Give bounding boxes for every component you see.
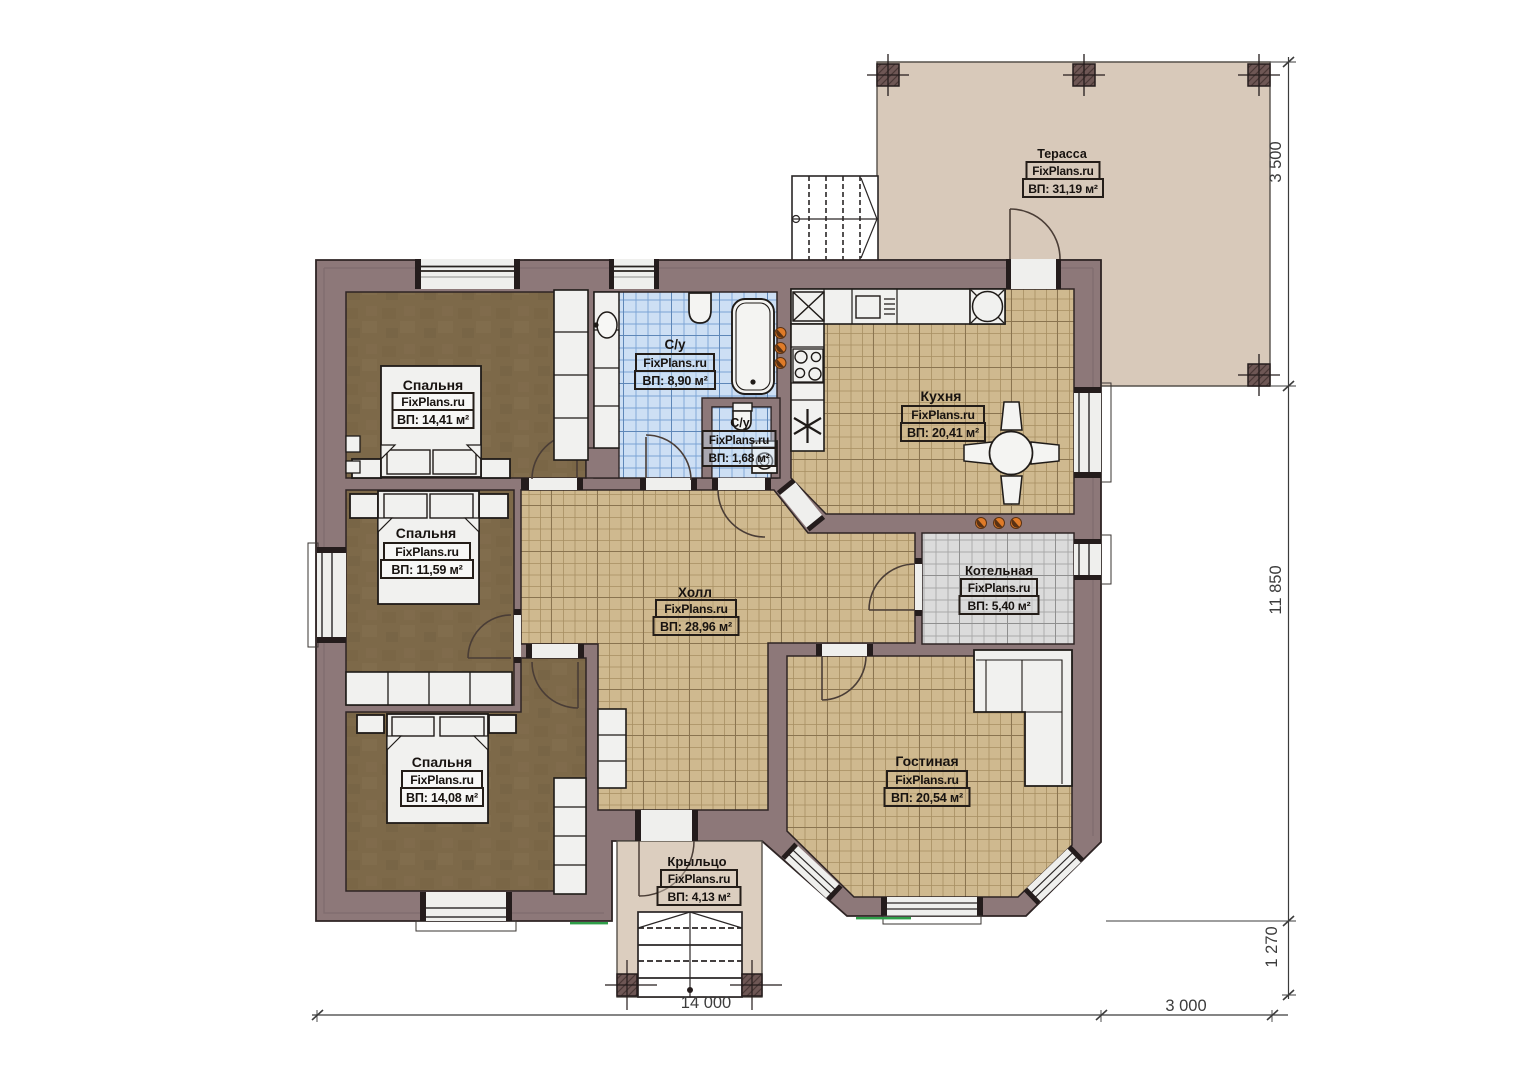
svg-text:ВП: 28,96 м²: ВП: 28,96 м² — [660, 620, 732, 634]
svg-text:ВП: 11,59 м²: ВП: 11,59 м² — [391, 563, 462, 577]
svg-text:Спальня: Спальня — [396, 525, 456, 541]
svg-text:ВП: 4,13 м²: ВП: 4,13 м² — [668, 890, 731, 904]
svg-text:FixPlans.ru: FixPlans.ru — [709, 434, 769, 447]
svg-text:Гостиная: Гостиная — [895, 753, 958, 769]
svg-text:11 850: 11 850 — [1267, 565, 1285, 614]
svg-text:ВП: 14,41 м²: ВП: 14,41 м² — [397, 413, 469, 427]
svg-text:ВП: 8,90 м²: ВП: 8,90 м² — [642, 374, 707, 388]
svg-text:FixPlans.ru: FixPlans.ru — [911, 408, 975, 422]
svg-text:ВП: 20,41 м²: ВП: 20,41 м² — [907, 426, 979, 440]
svg-text:3 500: 3 500 — [1267, 141, 1285, 182]
svg-text:ВП: 31,19 м²: ВП: 31,19 м² — [1028, 182, 1098, 196]
svg-text:Кухня: Кухня — [921, 388, 962, 404]
svg-text:Крыльцо: Крыльцо — [667, 854, 726, 869]
svg-text:FixPlans.ru: FixPlans.ru — [895, 773, 959, 787]
svg-text:Котельная: Котельная — [965, 563, 1033, 578]
svg-text:3 000: 3 000 — [1165, 997, 1206, 1015]
svg-text:Спальня: Спальня — [403, 377, 463, 393]
svg-text:ВП: 5,40 м²: ВП: 5,40 м² — [968, 599, 1031, 613]
svg-text:С/у: С/у — [730, 416, 750, 430]
svg-text:Спальня: Спальня — [412, 754, 472, 770]
svg-text:FixPlans.ru: FixPlans.ru — [643, 356, 707, 370]
svg-text:FixPlans.ru: FixPlans.ru — [668, 872, 731, 886]
svg-text:ВП: 1,68 м²: ВП: 1,68 м² — [709, 451, 770, 465]
svg-text:FixPlans.ru: FixPlans.ru — [968, 581, 1031, 595]
svg-text:FixPlans.ru: FixPlans.ru — [401, 395, 465, 409]
svg-text:FixPlans.ru: FixPlans.ru — [395, 545, 459, 559]
svg-text:FixPlans.ru: FixPlans.ru — [1032, 164, 1093, 178]
svg-text:ВП: 20,54 м²: ВП: 20,54 м² — [891, 791, 963, 805]
svg-text:FixPlans.ru: FixPlans.ru — [410, 773, 474, 787]
svg-text:С/у: С/у — [664, 337, 686, 352]
svg-text:ВП: 14,08 м²: ВП: 14,08 м² — [406, 791, 478, 805]
svg-text:FixPlans.ru: FixPlans.ru — [664, 602, 728, 616]
svg-text:Холл: Холл — [678, 585, 712, 600]
svg-text:1 270: 1 270 — [1263, 926, 1281, 967]
svg-text:Терасса: Терасса — [1037, 147, 1088, 161]
svg-text:14 000: 14 000 — [681, 994, 731, 1012]
